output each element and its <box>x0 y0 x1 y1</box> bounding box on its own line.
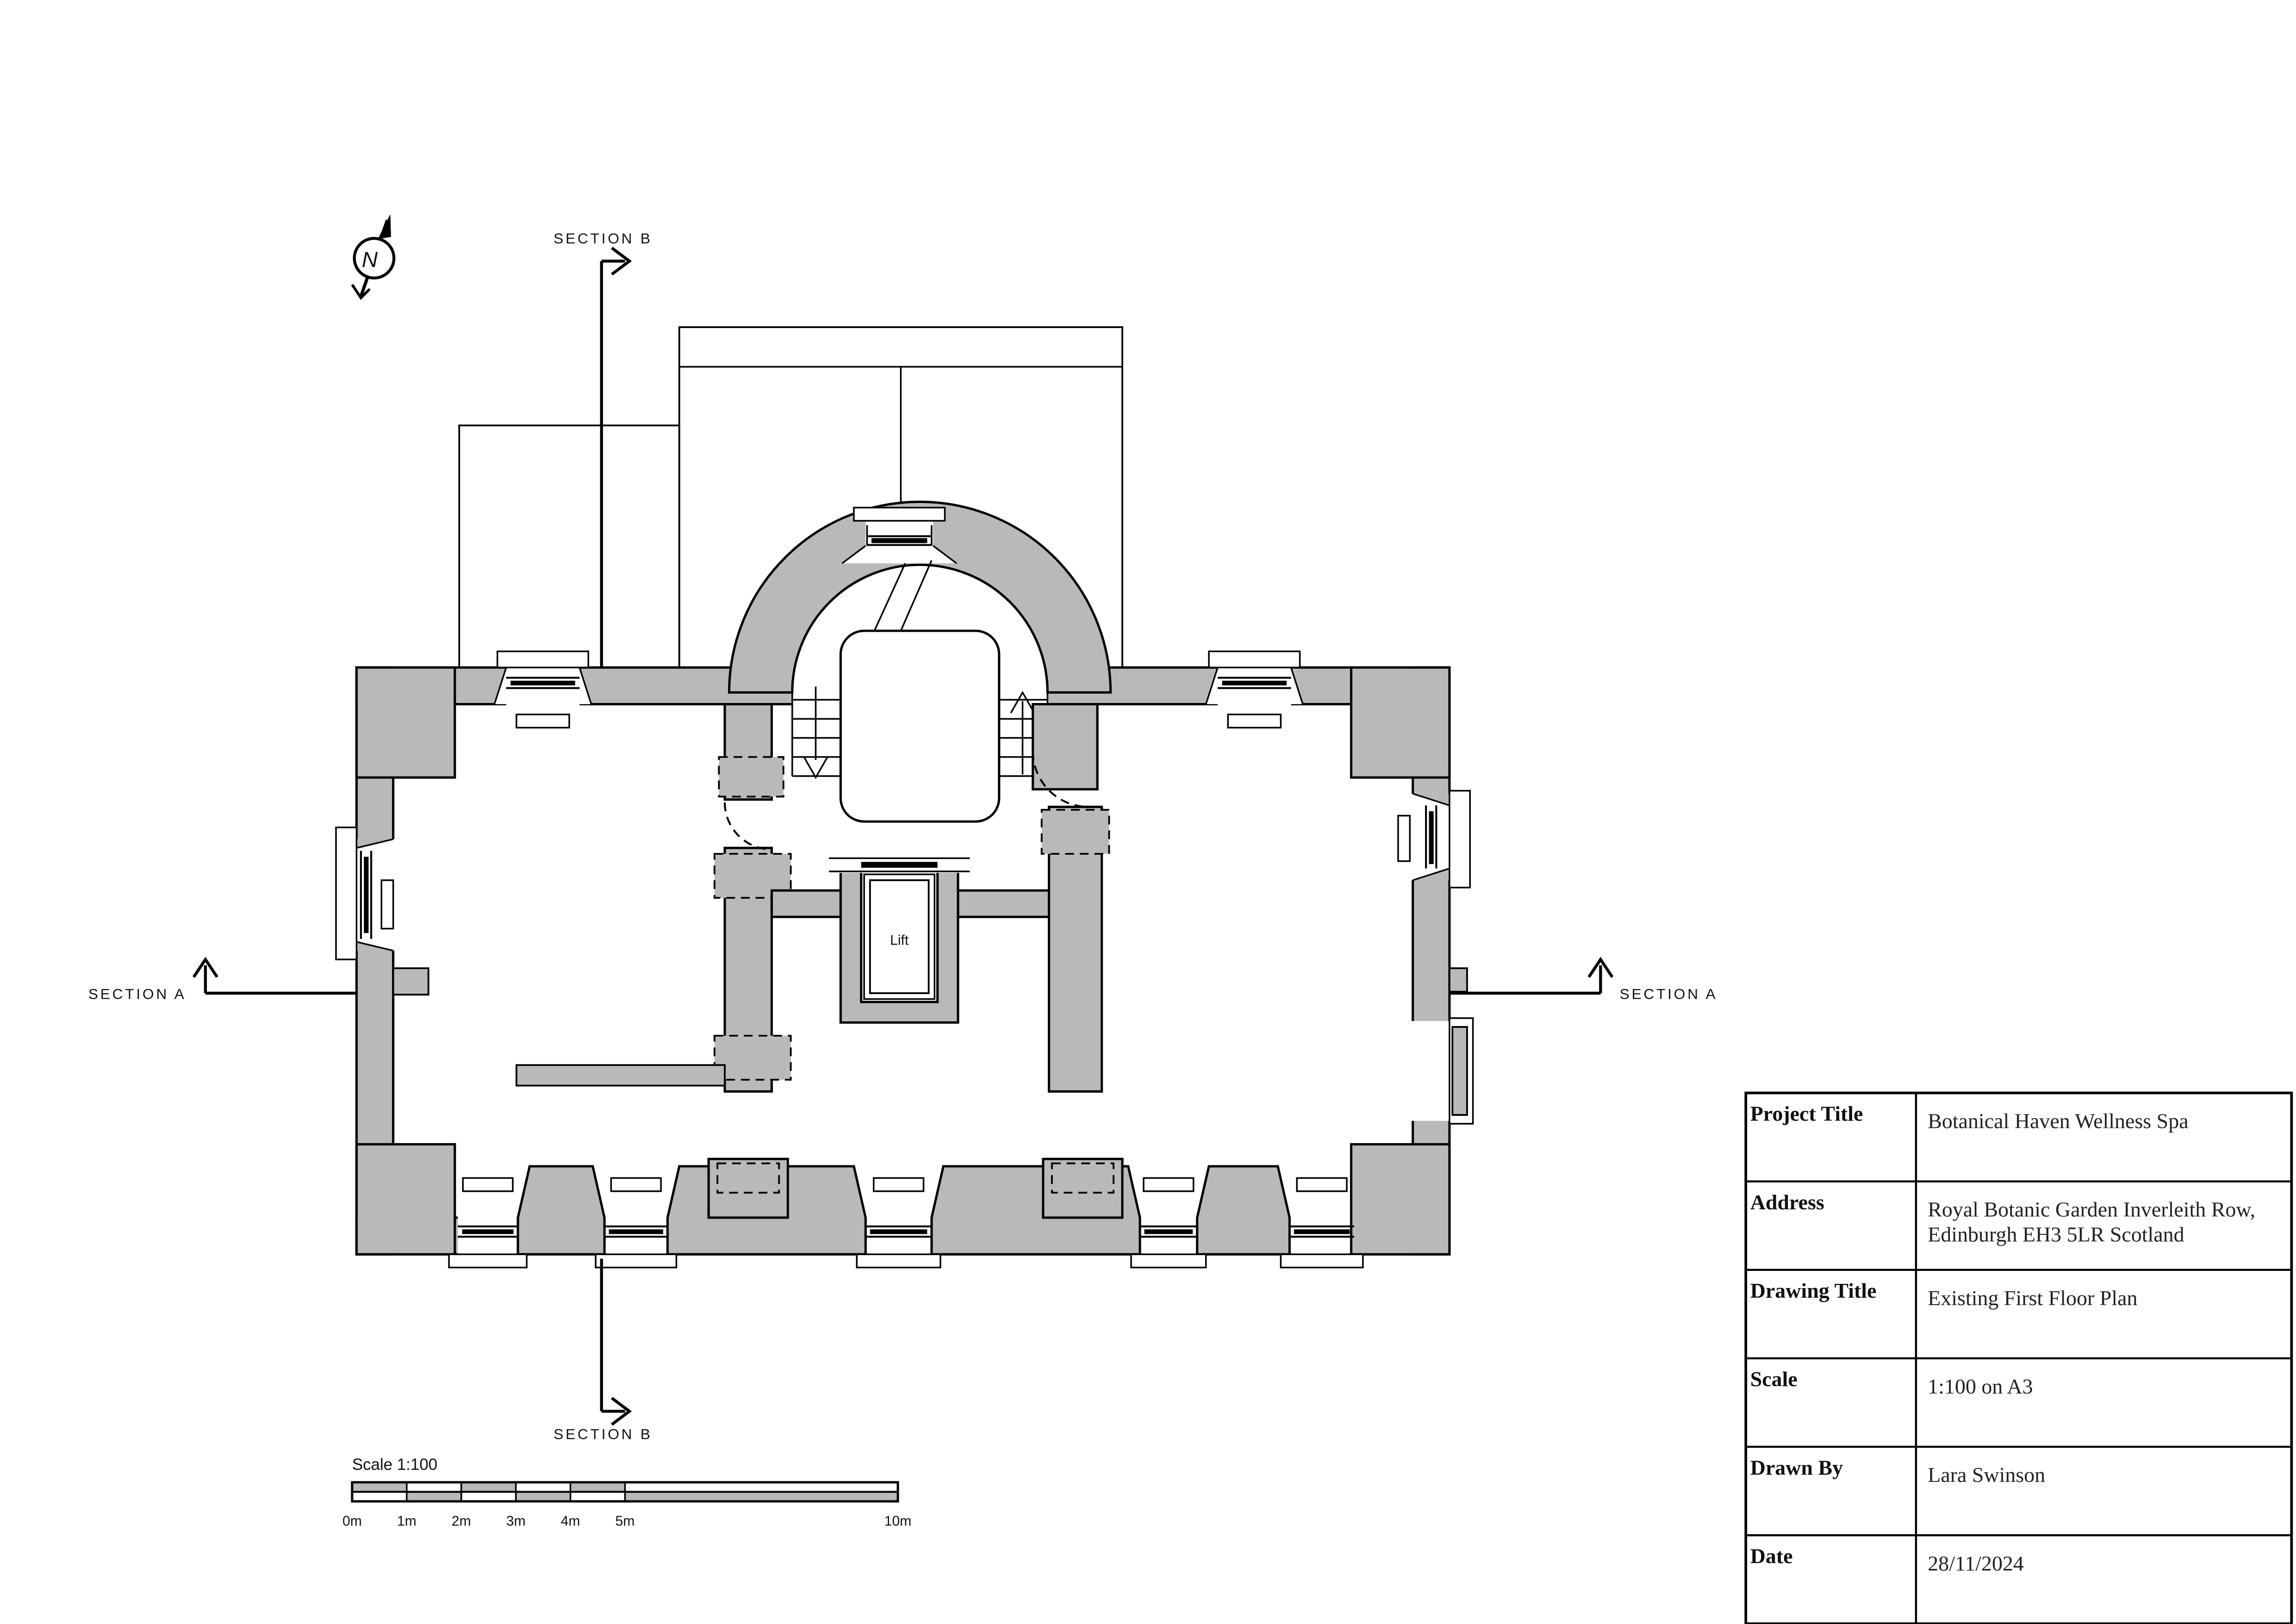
section-a-label-left: SECTION A <box>88 986 187 1002</box>
titleblock-value-date: 28/11/2024 <box>1928 1551 2024 1575</box>
wall-stub-right <box>1450 968 1467 992</box>
section-a-marker-left: SECTION A <box>88 959 357 1002</box>
titleblock-label-date: Date <box>1750 1544 1793 1568</box>
titleblock-value-drawn-by: Lara Swinson <box>1928 1463 2045 1487</box>
bottom-pier-4 <box>1197 1166 1290 1254</box>
corner-block-tr <box>1351 667 1450 778</box>
upper-outline-small <box>459 425 679 667</box>
corner-block-tl <box>356 667 454 778</box>
corner-block-bl <box>356 1144 454 1254</box>
section-b-marker-top: SECTION B <box>554 230 653 667</box>
titleblock-value-address-line2: Edinburgh EH3 5LR Scotland <box>1928 1223 2184 1246</box>
chimney-breast-right-pier <box>1052 1164 1114 1193</box>
scale-tick-3m: 3m <box>506 1514 526 1529</box>
lift-shaft: Lift <box>829 854 970 1023</box>
floor-plan-sheet: SECTION B <box>0 0 2296 1624</box>
lift-door-track <box>861 862 938 868</box>
scale-tick-10m: 10m <box>884 1514 912 1529</box>
stair-down-arrow-icon <box>804 757 828 778</box>
titleblock-label-project: Project Title <box>1750 1102 1863 1126</box>
corner-block-br <box>1351 1144 1450 1254</box>
lift-label: Lift <box>890 933 909 948</box>
apse-window-sill <box>854 508 945 521</box>
titleblock-label-address: Address <box>1750 1190 1824 1214</box>
chimney-breast-left-pier <box>717 1164 779 1193</box>
section-b-marker-bottom: SECTION B <box>554 1259 653 1443</box>
scale-tick-5m: 5m <box>616 1514 635 1529</box>
north-arrow-icon: N <box>352 214 394 298</box>
titleblock-label-drawn-by: Drawn By <box>1750 1456 1843 1479</box>
stair-diagonal-flight <box>874 563 905 631</box>
left-divider-upper-pier <box>719 757 783 797</box>
scale-bar: Scale 1:100 0m 1m 2m 3m 4m 5m 10m <box>342 1456 911 1529</box>
right-divider-pier <box>1042 810 1109 854</box>
right-divider-upper <box>1033 704 1097 790</box>
titleblock-value-project: Botanical Haven Wellness Spa <box>1928 1109 2188 1133</box>
corridor-wall-left <box>772 890 840 917</box>
door-swing-left <box>725 803 772 849</box>
bottom-pier-1 <box>518 1166 604 1254</box>
scale-tick-1m: 1m <box>397 1514 417 1529</box>
section-a-marker-right: SECTION A <box>1450 959 1718 1002</box>
scale-tick-0m: 0m <box>342 1514 362 1529</box>
left-fireplace-pier-bottom <box>715 1036 791 1080</box>
section-b-label-top: SECTION B <box>554 230 653 247</box>
scale-tick-2m: 2m <box>452 1514 471 1529</box>
titleblock-value-address-line1: Royal Botanic Garden Inverleith Row, <box>1928 1198 2255 1221</box>
titleblock-value-drawing-title: Existing First Floor Plan <box>1928 1286 2137 1310</box>
titleblock-label-scale: Scale <box>1750 1367 1798 1391</box>
stair-landing <box>840 631 999 821</box>
corridor-wall-right <box>958 890 1049 917</box>
wall-stub-left <box>393 968 429 995</box>
door-right-lower <box>1450 1018 1473 1124</box>
left-partition-wall <box>516 1065 725 1085</box>
section-a-label-right: SECTION A <box>1620 986 1718 1002</box>
titleblock-label-drawing-title: Drawing Title <box>1750 1279 1877 1302</box>
scale-bar-title: Scale 1:100 <box>352 1456 437 1474</box>
title-block: Project Title Botanical Haven Wellness S… <box>1746 1093 2291 1624</box>
titleblock-value-scale: 1:100 on A3 <box>1928 1375 2033 1398</box>
section-b-label-bottom: SECTION B <box>554 1426 653 1443</box>
scale-tick-4m: 4m <box>561 1514 580 1529</box>
apse-window-glazing <box>871 538 927 543</box>
north-label: N <box>362 248 378 272</box>
